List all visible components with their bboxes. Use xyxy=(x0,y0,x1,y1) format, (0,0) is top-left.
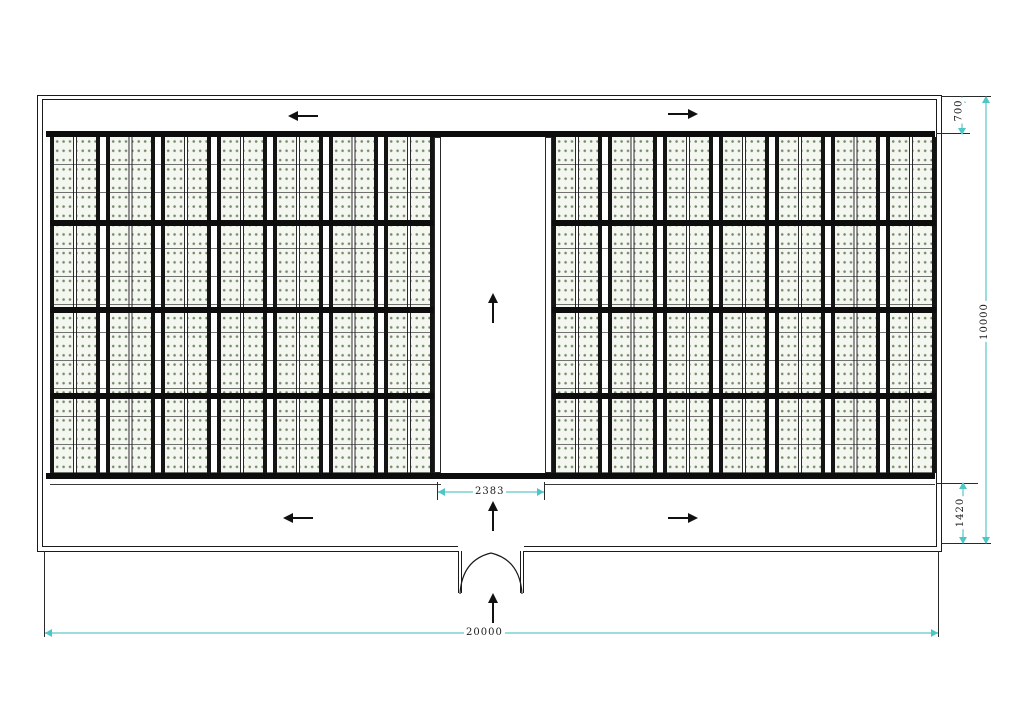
rack-strip xyxy=(663,137,713,473)
dimension-label-2383: 2383 xyxy=(473,486,506,497)
flow-arrow-left-icon xyxy=(288,110,318,122)
dimension-label-1420: 1420 xyxy=(955,496,966,529)
rack-strip xyxy=(831,137,881,473)
rack-baseplate-line xyxy=(545,484,935,485)
extension-line xyxy=(936,483,978,484)
rack-end-panel xyxy=(545,137,552,473)
rack-strip xyxy=(273,137,323,473)
door-swing-arcs xyxy=(458,551,524,596)
dimension-tick xyxy=(45,629,52,637)
dimension-label-700: 700 xyxy=(954,97,965,123)
dimension-tick xyxy=(959,537,967,544)
rack-strip xyxy=(161,137,211,473)
rack-block-right xyxy=(552,137,936,473)
flow-arrow-up-icon xyxy=(487,501,499,531)
entrance-arrow-up-icon xyxy=(487,593,499,623)
floor-plan: 700 10000 1420 2383 20000 xyxy=(0,0,1014,710)
rack-strip xyxy=(608,137,658,473)
rack-strip xyxy=(106,137,156,473)
dimension-tick xyxy=(982,96,990,103)
extension-line xyxy=(44,551,45,637)
flow-arrow-up-icon xyxy=(487,293,499,323)
rack-strip xyxy=(719,137,769,473)
rack-strip xyxy=(384,137,434,473)
rack-bottom-rail xyxy=(46,473,935,479)
flow-arrow-left-icon xyxy=(283,512,313,524)
rack-strip xyxy=(886,137,936,473)
dimension-tick xyxy=(982,537,990,544)
dimension-tick xyxy=(438,488,445,496)
rack-strip xyxy=(329,137,379,473)
dimension-tick xyxy=(959,482,967,489)
flow-arrow-right-icon xyxy=(668,108,698,120)
flow-arrow-right-icon xyxy=(668,512,698,524)
dimension-tick xyxy=(958,128,966,135)
rack-end-panel xyxy=(434,137,441,473)
rack-strip xyxy=(775,137,825,473)
rack-strip xyxy=(552,137,602,473)
dimension-tick xyxy=(931,629,938,637)
rack-baseplate-line xyxy=(50,484,441,485)
rack-strip xyxy=(217,137,267,473)
dimension-tick xyxy=(537,488,544,496)
rack-strip xyxy=(50,137,100,473)
dimension-label-20000: 20000 xyxy=(464,627,505,638)
rack-block-left xyxy=(50,137,434,473)
extension-line xyxy=(938,551,939,637)
extension-line xyxy=(544,482,545,500)
dimension-label-10000: 10000 xyxy=(979,301,990,342)
